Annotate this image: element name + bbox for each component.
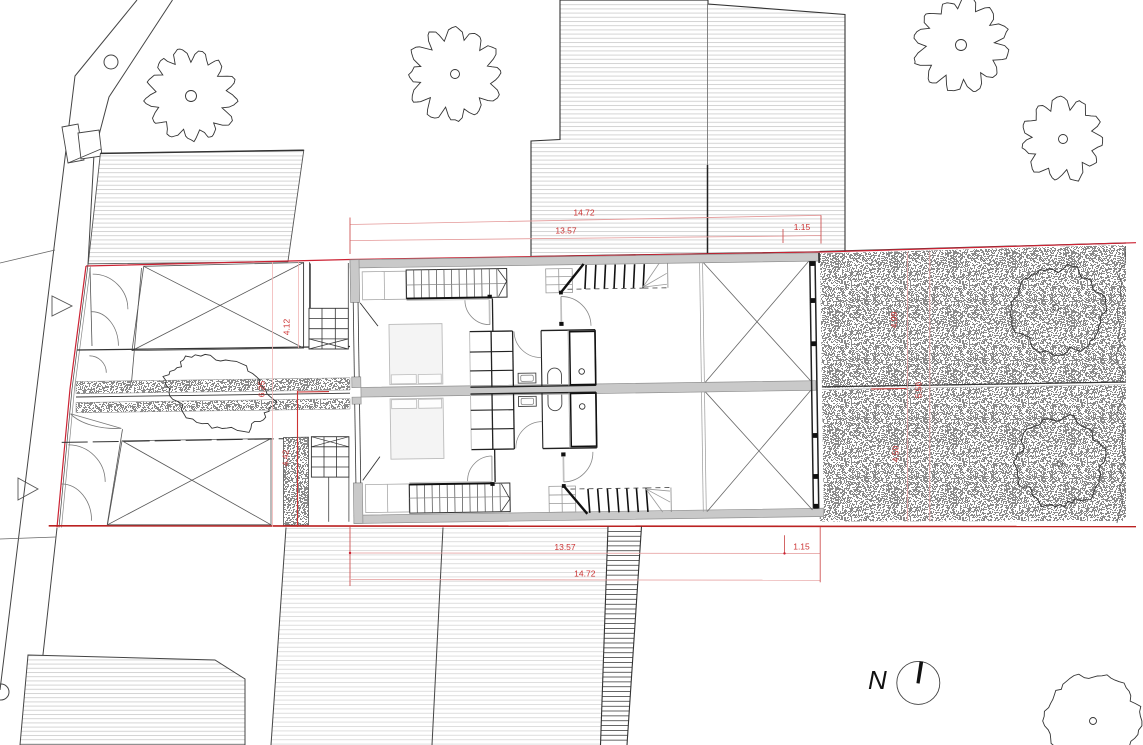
svg-text:14.72: 14.72: [574, 569, 596, 579]
svg-text:1.15: 1.15: [794, 222, 811, 232]
svg-text:13.57: 13.57: [555, 226, 577, 236]
svg-text:4.99: 4.99: [889, 311, 899, 328]
svg-text:4.50: 4.50: [891, 445, 901, 462]
svg-text:4.42: 4.42: [281, 449, 291, 466]
svg-text:N: N: [868, 665, 887, 695]
svg-text:6.25: 6.25: [257, 380, 267, 397]
svg-text:13.57: 13.57: [554, 542, 576, 552]
svg-text:5.56: 5.56: [914, 381, 924, 398]
svg-text:1.15: 1.15: [793, 542, 810, 552]
svg-text:14.72: 14.72: [573, 208, 595, 218]
svg-text:4.12: 4.12: [282, 318, 292, 335]
